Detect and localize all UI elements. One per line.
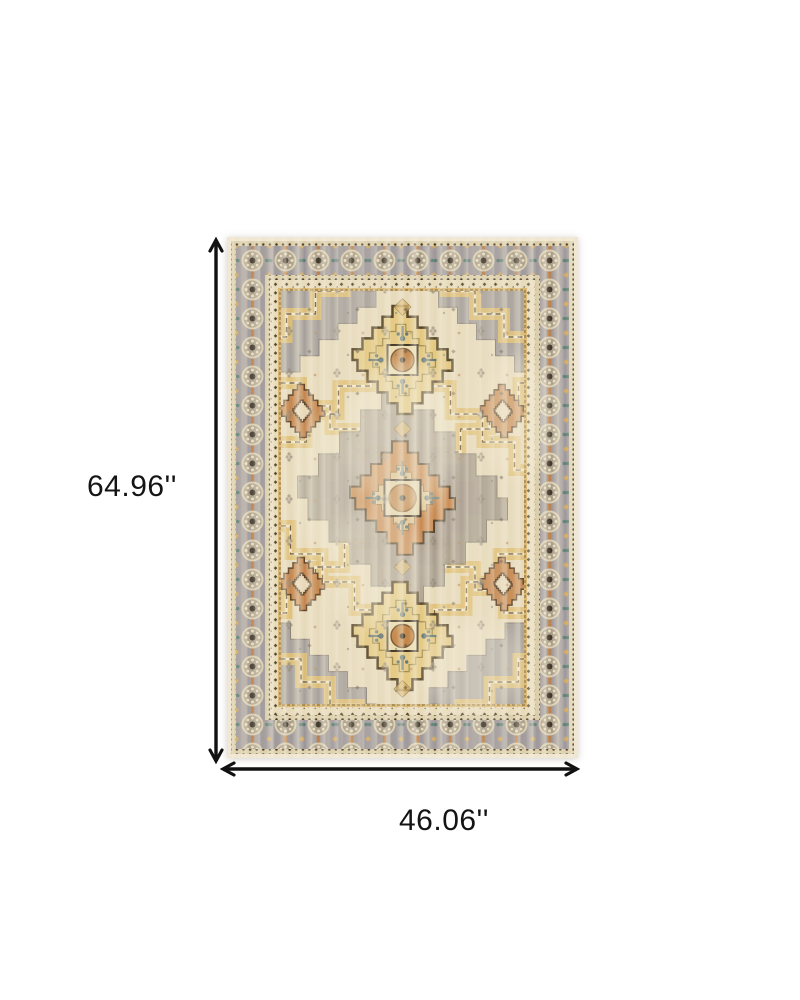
rug-distress-overlay: [227, 237, 578, 758]
height-dimension-label: 64.96'': [68, 472, 196, 502]
rug-product-photo: [227, 237, 578, 758]
width-dimension-label: 46.06'': [380, 806, 508, 836]
page-background: 64.96'' 46.06'': [0, 0, 800, 1000]
